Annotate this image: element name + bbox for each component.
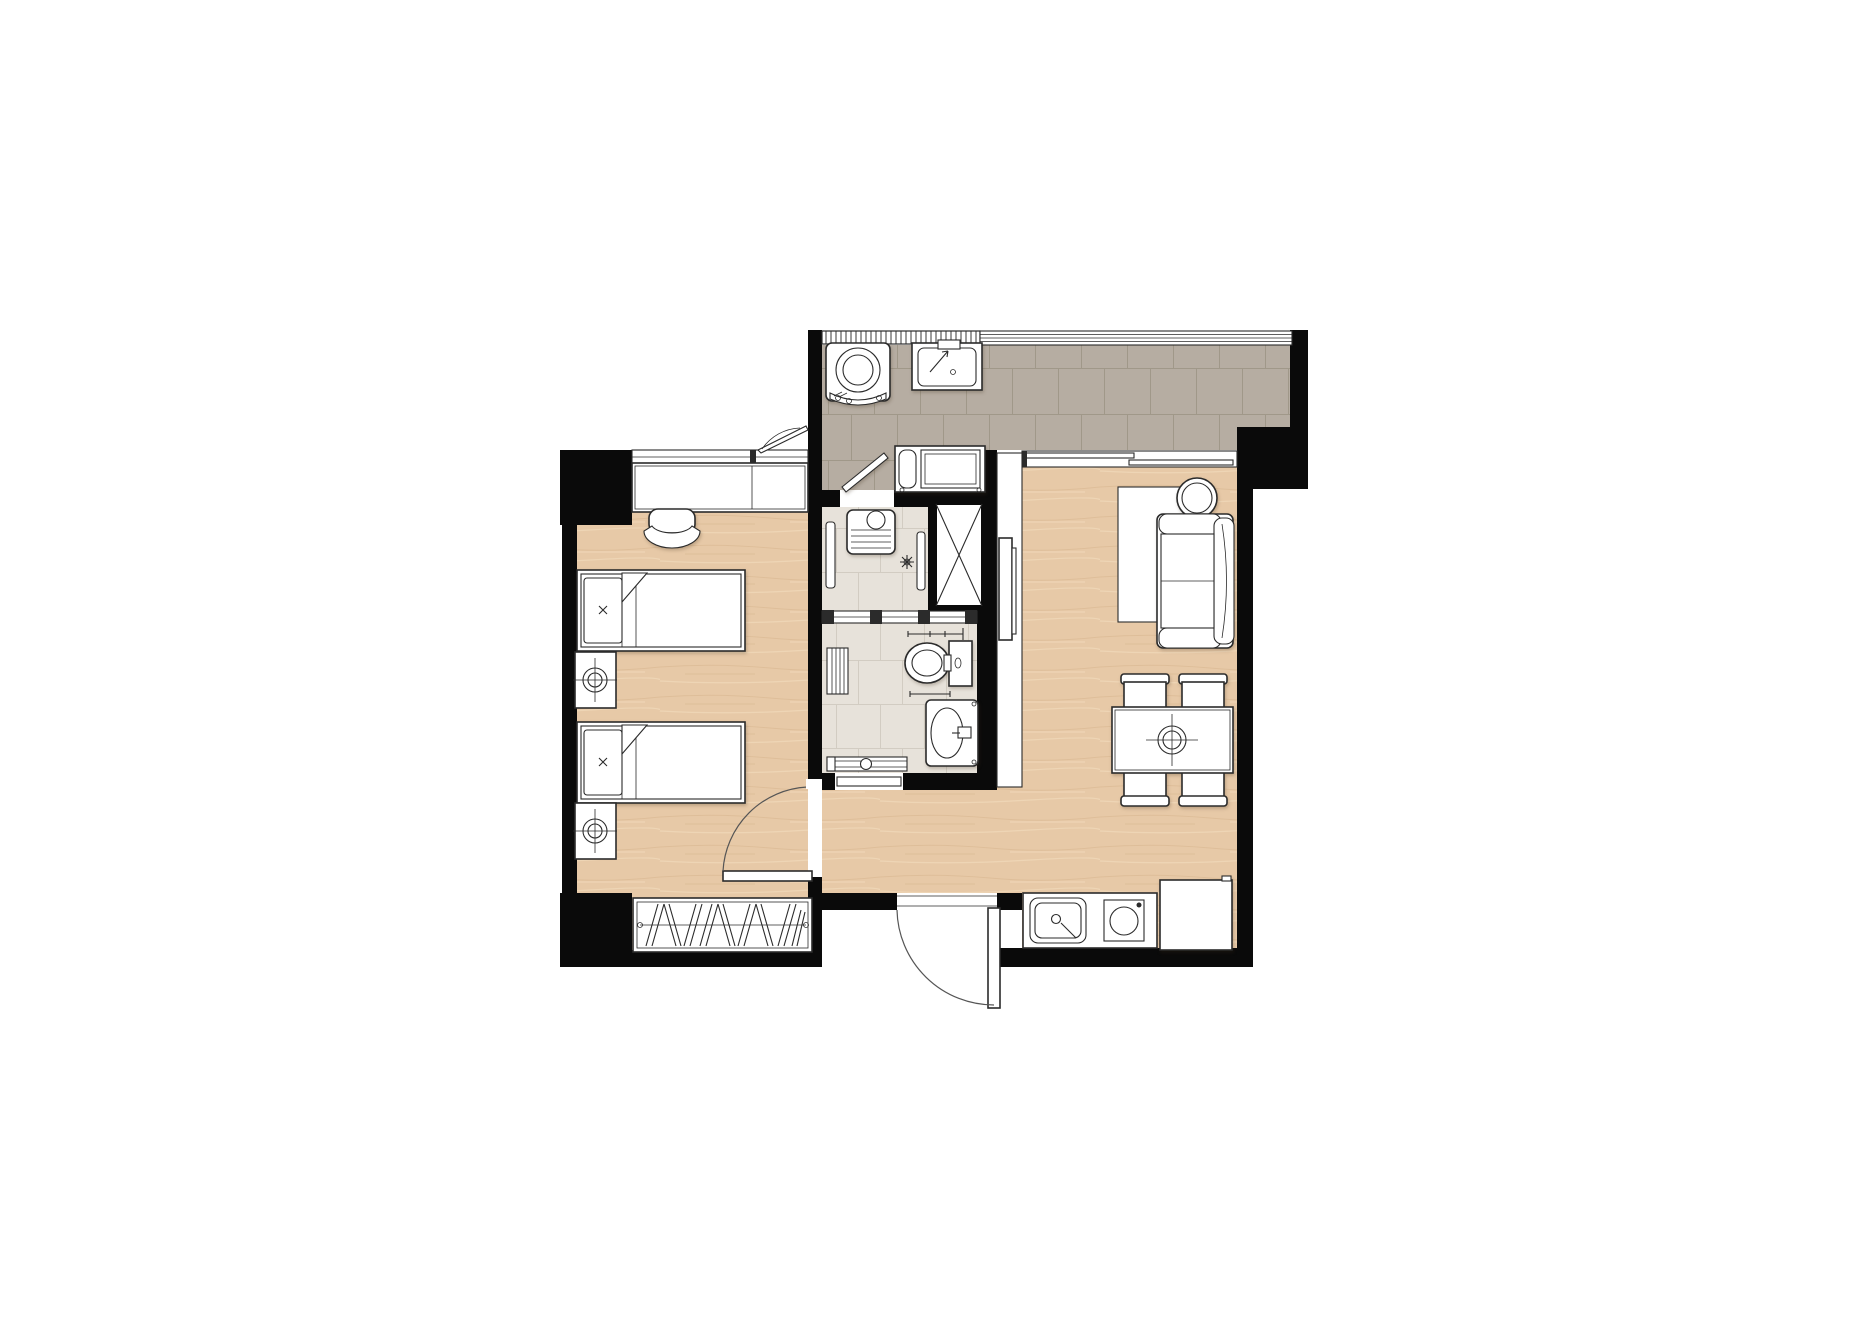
ac-condenser-unit (895, 446, 985, 492)
living-sliding-window (1022, 451, 1237, 467)
entrance-door-leaf (988, 908, 1000, 1008)
balcony-floor (822, 345, 1290, 450)
glass-partition (822, 610, 977, 624)
wc-doorway (835, 773, 903, 790)
single-bed-2 (577, 722, 745, 803)
wardrobe-hangers (633, 898, 812, 952)
dining-chair (1179, 674, 1227, 710)
laundry-sink (912, 340, 982, 390)
wall-east (1237, 489, 1253, 967)
entrance-door-swing (897, 910, 994, 1005)
floor-plan-page (0, 0, 1863, 1317)
wall-balcony-post-e (1290, 330, 1308, 427)
wall-south-kitchen (997, 948, 1240, 967)
entry-threshold (897, 893, 997, 910)
bedroom-doorway (808, 787, 822, 877)
bedroom-window (632, 426, 808, 465)
entry (897, 908, 1000, 1008)
wash-basin (926, 700, 978, 766)
sofa (1157, 514, 1234, 648)
kitchen-sink (1030, 898, 1086, 943)
nightstand-2 (573, 803, 617, 859)
wall-tv (999, 538, 1016, 640)
desk (632, 463, 808, 512)
shower-balcony-doorway (840, 490, 894, 507)
nightstand-1 (573, 652, 617, 708)
wall-column-sw (560, 893, 632, 967)
hallway-floor (808, 787, 1022, 893)
wall-column-ne (1237, 427, 1308, 489)
washing-machine (826, 343, 890, 405)
awning-window-leaf (758, 426, 808, 453)
service-shaft (936, 504, 982, 606)
single-bed-1 (577, 570, 745, 651)
toilet (905, 641, 972, 686)
wall-south-entry-w (822, 893, 897, 910)
balcony-glazing (980, 331, 1292, 345)
refrigerator (1160, 876, 1232, 950)
dining-chair (1121, 770, 1169, 806)
wall-spine-upper (808, 330, 822, 787)
floor-plan-drawing (0, 0, 1863, 1317)
wall-column-nw (560, 450, 632, 525)
round-side-table (1177, 478, 1217, 518)
desk-chair (644, 509, 700, 548)
towel-rail (826, 522, 835, 588)
shower-shelf-unit (847, 510, 895, 554)
dining-chair (1179, 770, 1227, 806)
slat-mat (827, 648, 848, 694)
low-shelf (827, 757, 907, 771)
single-burner (1104, 900, 1144, 941)
dining-chair (1121, 674, 1169, 710)
